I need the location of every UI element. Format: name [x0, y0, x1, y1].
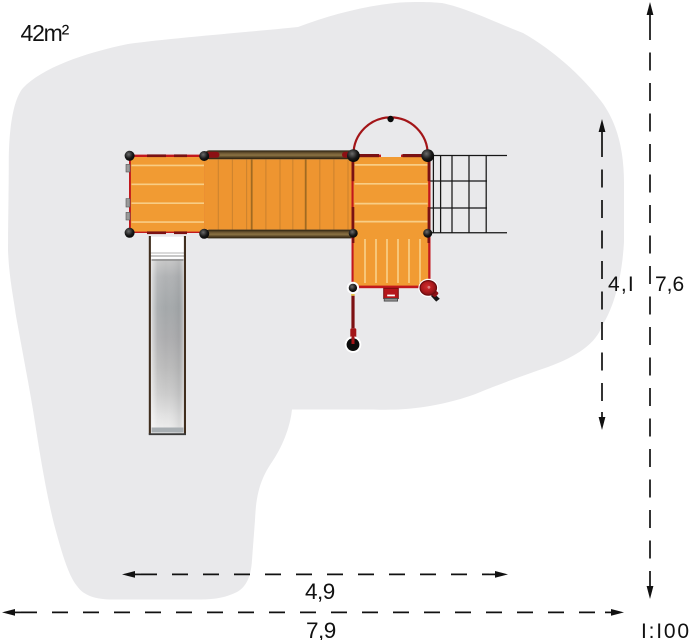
svg-text:4,9: 4,9	[305, 579, 335, 604]
svg-text:I:I00: I:I00	[641, 620, 691, 640]
svg-text:7,6: 7,6	[655, 273, 684, 296]
svg-text:7,9: 7,9	[306, 618, 336, 640]
svg-text:4,I: 4,I	[608, 273, 635, 296]
svg-text:42m²: 42m²	[21, 20, 70, 46]
